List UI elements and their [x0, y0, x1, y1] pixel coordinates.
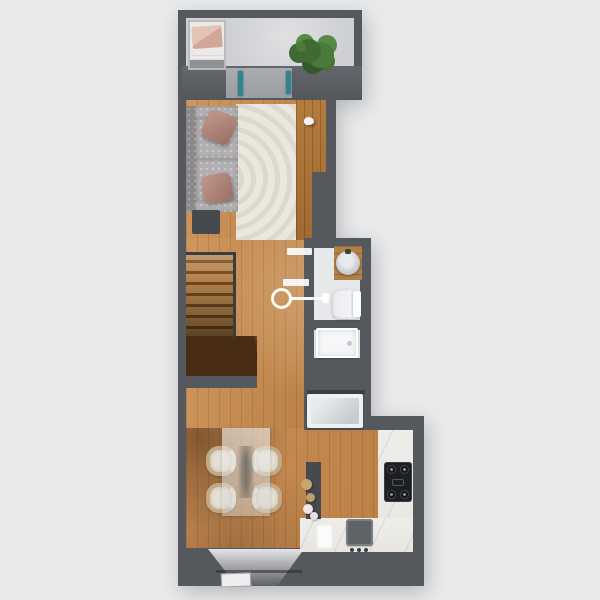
stove-cooktop: [385, 463, 411, 501]
wall-below-stairs: [180, 376, 257, 388]
faucet-handle-icon: [364, 548, 368, 552]
sofa: [186, 106, 238, 212]
stair-railing: [233, 252, 236, 338]
toilet-tank: [353, 291, 361, 317]
lounger-footboard: [190, 60, 224, 68]
burner-icon: [400, 465, 409, 474]
wall-living-jut: [312, 172, 336, 240]
faucet-handle-icon: [350, 548, 354, 552]
washing-machine-lid: [311, 398, 359, 424]
decor-vase: [310, 512, 318, 520]
staircase-straight-run: [186, 252, 233, 336]
stove-dial-icon: [392, 479, 404, 486]
open-door-panel: [287, 248, 312, 255]
stair-top-edge: [186, 252, 234, 255]
decor-vase: [301, 479, 312, 490]
door-mat: [221, 572, 251, 587]
potted-plant-icon: [296, 42, 306, 52]
side-table: [192, 210, 220, 234]
wall-ring-bracket: [322, 293, 329, 303]
sliding-glass-door: [226, 68, 292, 98]
round-sink: [336, 251, 360, 275]
apartment-plan: [0, 0, 600, 600]
floor-plan-image: [0, 0, 600, 600]
washing-machine: [307, 394, 363, 428]
burner-icon: [400, 490, 409, 499]
kitchen-towel: [316, 524, 334, 550]
shower-drain-icon: [347, 341, 352, 346]
glass-door-panel-icon: [286, 71, 291, 94]
open-door-panel: [283, 279, 309, 286]
faucet-spout-icon: [357, 548, 361, 552]
glass-dining-table: [222, 428, 270, 516]
throw-pillow: [200, 172, 234, 205]
area-rug: [236, 104, 296, 240]
burner-icon: [387, 465, 396, 474]
shower-tray: [316, 328, 358, 358]
decor-vase: [306, 493, 315, 502]
lounger: [188, 20, 226, 70]
wall-balcony-top: [178, 10, 362, 18]
glass-door-panel-icon: [238, 71, 243, 96]
bird-figurine: [304, 117, 314, 125]
wall-living-right: [326, 96, 336, 176]
staircase-winder-turn: [186, 336, 257, 376]
faucet-icon: [345, 249, 351, 254]
sofa-backrest: [186, 106, 196, 212]
burner-icon: [387, 490, 396, 499]
kitchen-sink: [346, 519, 373, 546]
table-centerpiece: [236, 446, 256, 498]
toilet: [332, 289, 360, 319]
lounger-pink-blanket: [191, 25, 222, 49]
wall-ring-decor: [271, 288, 292, 309]
